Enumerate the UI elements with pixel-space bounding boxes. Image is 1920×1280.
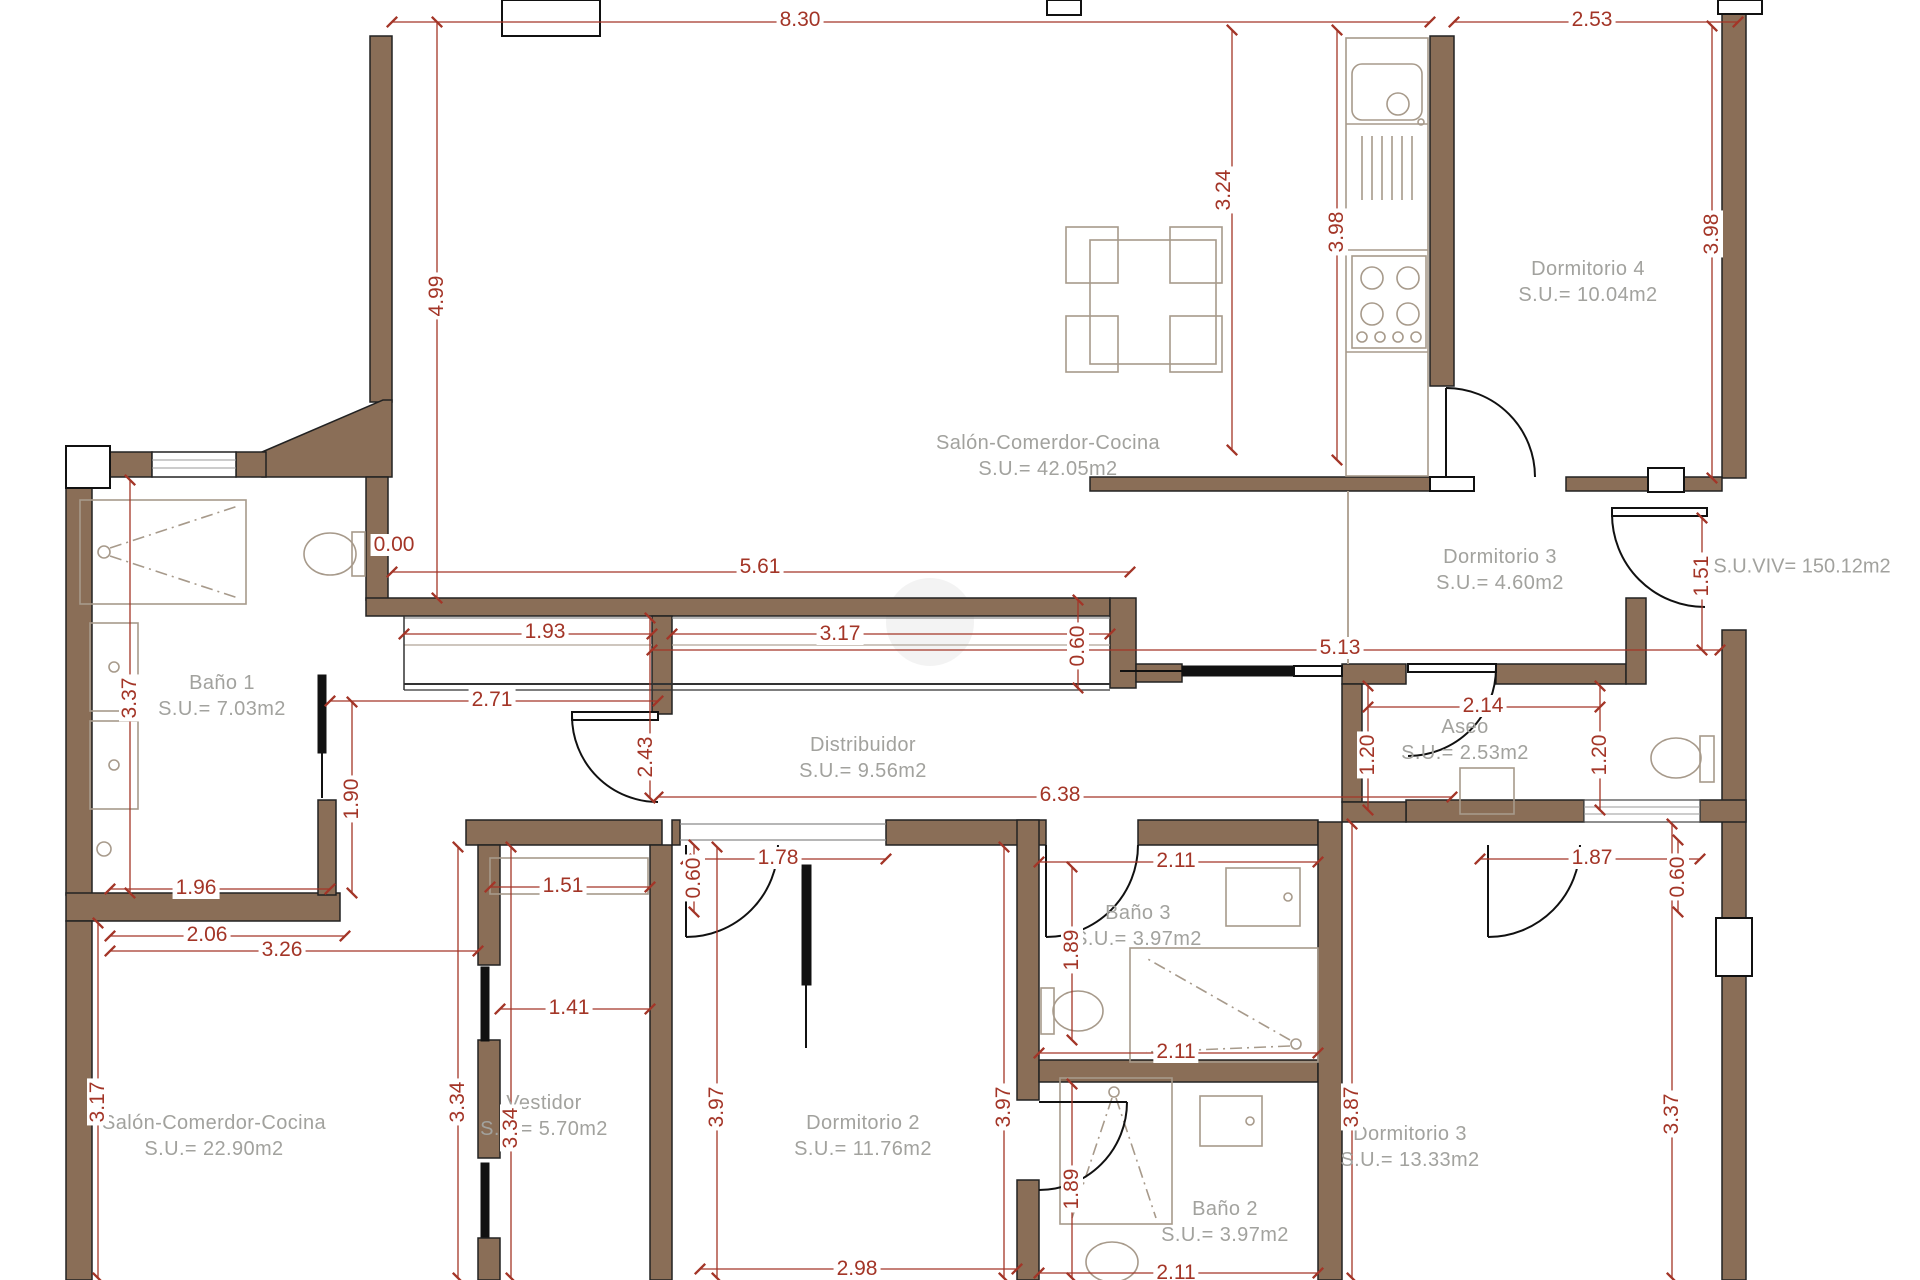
room-label-bano1: Baño 1 S.U.= 7.03m2 bbox=[158, 670, 286, 722]
dim-label: 3.37 bbox=[119, 675, 141, 722]
sink-bano1-b bbox=[90, 721, 138, 809]
room-label-bano2: Baño 2 S.U.= 3.97m2 bbox=[1161, 1196, 1289, 1248]
dim-label: 2.53 bbox=[1569, 9, 1616, 31]
dim-label: 0.60 bbox=[1067, 623, 1089, 670]
dim-label: 3.97 bbox=[993, 1084, 1015, 1131]
dim-label: 2.71 bbox=[469, 689, 516, 711]
room-label-salon-bottom: Salón-Comerdor-Cocina S.U.= 22.90m2 bbox=[102, 1110, 326, 1162]
dim-label: 1.51 bbox=[1691, 553, 1713, 600]
dim-label: 1.78 bbox=[755, 847, 802, 869]
dim-label: 1.20 bbox=[1357, 732, 1379, 779]
dim-label: 2.06 bbox=[184, 924, 231, 946]
dim-label: 2.98 bbox=[834, 1258, 881, 1280]
room-label-distribuidor: Distribuidor S.U.= 9.56m2 bbox=[799, 732, 927, 784]
door-leaf-dorm2 bbox=[802, 865, 811, 985]
room-label-aseo: Aseo S.U.= 2.53m2 bbox=[1401, 714, 1529, 766]
fixtures bbox=[80, 38, 1714, 1280]
room-label-dorm3-upper: Dormitorio 3 S.U.= 4.60m2 bbox=[1436, 544, 1564, 596]
dim-label: 1.87 bbox=[1569, 847, 1616, 869]
dim-label: 3.24 bbox=[1213, 167, 1235, 214]
dim-label: 3.17 bbox=[817, 623, 864, 645]
sliding-door-vestidor-b bbox=[481, 1163, 489, 1237]
dim-label: 4.99 bbox=[426, 273, 448, 320]
room-label-bano3: Baño 3 S.U.= 3.97m2 bbox=[1074, 900, 1202, 952]
dim-label: 3.26 bbox=[259, 939, 306, 961]
dim-label: 6.38 bbox=[1037, 784, 1084, 806]
dim-label: 3.37 bbox=[1661, 1091, 1683, 1138]
door-distribuidor bbox=[572, 712, 658, 720]
dim-label: 3.34 bbox=[500, 1105, 522, 1152]
dim-label: 0.60 bbox=[1667, 854, 1689, 901]
room-label-dorm2: Dormitorio 2 S.U.= 11.76m2 bbox=[794, 1110, 932, 1162]
window-dorm3b bbox=[1584, 800, 1700, 822]
shower-bano1 bbox=[80, 500, 246, 604]
dim-label: 1.51 bbox=[540, 875, 587, 897]
dim-label: 2.43 bbox=[635, 734, 657, 781]
dining-set bbox=[1066, 227, 1222, 372]
dim-label: 2.11 bbox=[1153, 850, 1198, 872]
dim-label: 8.30 bbox=[777, 9, 824, 31]
toilet-aseo bbox=[1651, 738, 1701, 778]
dim-label: 5.13 bbox=[1317, 637, 1364, 659]
sink-bano3 bbox=[1226, 868, 1300, 926]
door-aseo bbox=[1408, 664, 1496, 672]
floorplan-drawing bbox=[0, 0, 1920, 1280]
dim-label: 3.17 bbox=[87, 1079, 109, 1126]
room-label-dorm4: Dormitorio 4 S.U.= 10.04m2 bbox=[1518, 256, 1657, 308]
watermark bbox=[886, 578, 974, 666]
sliding-door-dorm3u bbox=[1182, 666, 1294, 676]
door-entry bbox=[1612, 508, 1707, 516]
dim-label: 1.89 bbox=[1061, 1166, 1083, 1213]
dim-label: 0.60 bbox=[683, 855, 705, 902]
dimension-lines bbox=[98, 22, 1738, 1278]
dim-label: 3.98 bbox=[1701, 211, 1723, 258]
total-area-label: S.U.VIV= 150.12m2 bbox=[1713, 556, 1890, 579]
dim-label: 2.11 bbox=[1153, 1041, 1198, 1063]
kitchen-grill bbox=[1362, 136, 1412, 200]
dim-label: 1.41 bbox=[546, 997, 593, 1019]
dim-label: 1.93 bbox=[522, 621, 569, 643]
toilet-bano3 bbox=[1053, 991, 1103, 1031]
toilet-bano1 bbox=[304, 533, 356, 575]
toilet-bano2 bbox=[1086, 1242, 1138, 1280]
dim-label: 2.14 bbox=[1460, 695, 1507, 717]
dim-label: 3.87 bbox=[1341, 1084, 1363, 1131]
dim-label: 3.97 bbox=[706, 1084, 728, 1131]
floor-plan: Salón-Comerdor-Cocina S.U.= 42.05m2 Dorm… bbox=[0, 0, 1920, 1280]
dim-label: 0.00 bbox=[371, 534, 418, 556]
sink-bano2 bbox=[1200, 1096, 1262, 1146]
sliding-door-bano1 bbox=[318, 675, 326, 753]
dim-label: 1.96 bbox=[173, 877, 220, 899]
window-bano1 bbox=[152, 452, 236, 477]
dim-label: 2.11 bbox=[1153, 1262, 1198, 1280]
room-label-salon-top: Salón-Comerdor-Cocina S.U.= 42.05m2 bbox=[936, 430, 1160, 482]
dim-label: 1.20 bbox=[1589, 732, 1611, 779]
dim-label: 3.34 bbox=[447, 1079, 469, 1126]
dim-label: 3.98 bbox=[1326, 209, 1348, 256]
dim-label: 1.90 bbox=[341, 776, 363, 823]
dim-label: 5.61 bbox=[737, 556, 784, 578]
dim-label: 1.89 bbox=[1061, 927, 1083, 974]
sliding-door-vestidor-a bbox=[481, 967, 489, 1041]
kitchen-sink bbox=[1352, 64, 1422, 120]
